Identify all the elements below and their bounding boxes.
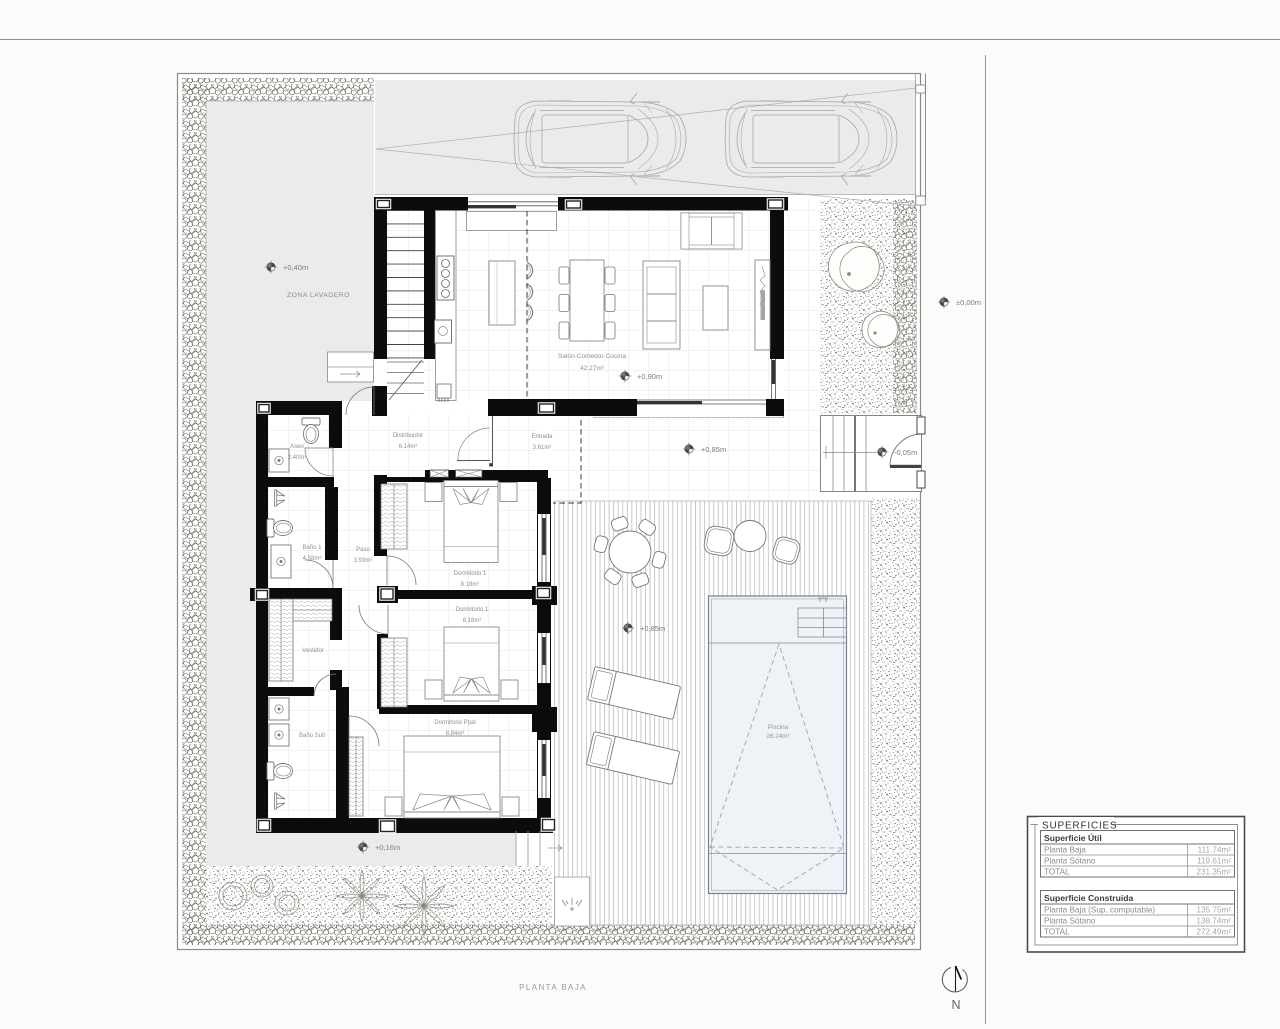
svg-text:Baño Suit: Baño Suit [299,733,325,739]
svg-text:Entrada: Entrada [531,434,553,440]
svg-text:SUPERFICIES: SUPERFICIES [1042,821,1117,832]
svg-text:231.35m²: 231.35m² [1196,868,1231,877]
svg-text:TOTAL: TOTAL [1044,928,1070,937]
svg-text:Superficie Construida: Superficie Construida [1044,893,1134,903]
svg-text:119.61m²: 119.61m² [1197,857,1231,866]
svg-text:138.74m²: 138.74m² [1196,917,1231,926]
svg-text:111.74m²: 111.74m² [1198,846,1232,855]
svg-text:ZONA LAVADERO: ZONA LAVADERO [287,292,350,299]
svg-text:Paso: Paso [356,547,370,553]
svg-text:+0,90m: +0,90m [637,372,662,381]
svg-text:8.18m²: 8.18m² [461,582,480,588]
svg-text:+0,85m: +0,85m [701,445,726,454]
svg-text:N: N [951,998,960,1012]
svg-text:Distribuidor: Distribuidor [393,433,423,439]
svg-text:Dormitorio 1: Dormitorio 1 [454,571,487,577]
svg-text:Superficie Útil: Superficie Útil [1044,832,1102,843]
svg-text:42.27m²: 42.27m² [580,365,605,372]
svg-text:+0,85m: +0,85m [640,624,665,633]
svg-text:+0,16m: +0,16m [375,843,400,852]
svg-text:Piscina: Piscina [768,724,789,731]
svg-text:8.18m²: 8.18m² [463,618,482,624]
svg-text:26.24m²: 26.24m² [766,733,789,740]
svg-text:Aseo: Aseo [290,444,304,450]
svg-text:+0,40m: +0,40m [283,263,308,272]
svg-text:3.93m²: 3.93m² [354,558,373,564]
svg-text:135.75m²: 135.75m² [1196,906,1231,915]
svg-text:Planta Sótano: Planta Sótano [1044,857,1096,866]
svg-text:8.84m²: 8.84m² [446,731,465,737]
svg-text:4.58m²: 4.58m² [303,556,322,562]
svg-text:Planta Sótano: Planta Sótano [1044,917,1096,926]
svg-text:2.40m²: 2.40m² [288,455,307,461]
svg-text:Baño 1: Baño 1 [302,545,322,551]
svg-text:Planta Baja (Sup. computable): Planta Baja (Sup. computable) [1044,906,1155,915]
svg-text:Vestidor: Vestidor [302,648,324,654]
svg-text:±0,00m: ±0,00m [956,298,981,307]
svg-text:Planta Baja: Planta Baja [1044,846,1086,855]
svg-text:Salón-Comedor-Cocina: Salón-Comedor-Cocina [558,353,626,360]
svg-text:Dormitorio 1: Dormitorio 1 [456,607,489,613]
svg-text:PLANTA BAJA: PLANTA BAJA [519,983,587,992]
svg-text:272.49m²: 272.49m² [1196,928,1231,937]
svg-text:3.61m²: 3.61m² [533,445,552,451]
svg-text:-0,05m: -0,05m [894,448,917,457]
svg-text:6.14m²: 6.14m² [399,444,418,450]
svg-text:Dormitorio Ppal: Dormitorio Ppal [434,720,475,726]
svg-text:TOTAL: TOTAL [1044,868,1070,877]
